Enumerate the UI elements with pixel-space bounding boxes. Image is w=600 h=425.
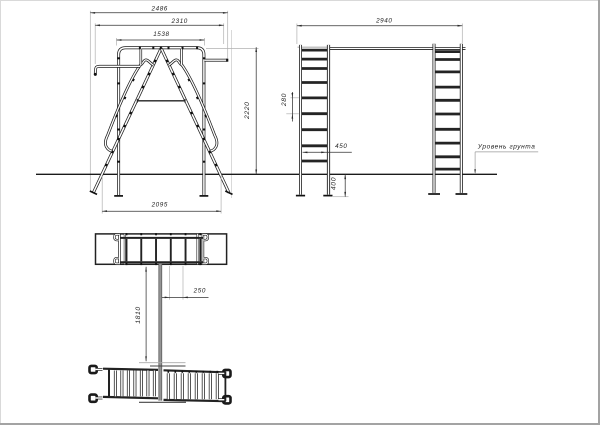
svg-text:Уровень грунта: Уровень грунта bbox=[477, 144, 536, 151]
svg-text:2486: 2486 bbox=[150, 6, 167, 13]
svg-text:2310: 2310 bbox=[170, 18, 187, 25]
svg-text:2940: 2940 bbox=[375, 18, 392, 25]
svg-text:450: 450 bbox=[335, 143, 347, 150]
svg-text:280: 280 bbox=[281, 93, 288, 107]
svg-text:250: 250 bbox=[193, 288, 206, 295]
svg-text:2095: 2095 bbox=[151, 202, 168, 209]
svg-text:400: 400 bbox=[330, 177, 337, 190]
svg-text:1538: 1538 bbox=[153, 31, 169, 38]
svg-text:2220: 2220 bbox=[244, 101, 251, 120]
svg-text:1810: 1810 bbox=[135, 306, 142, 324]
